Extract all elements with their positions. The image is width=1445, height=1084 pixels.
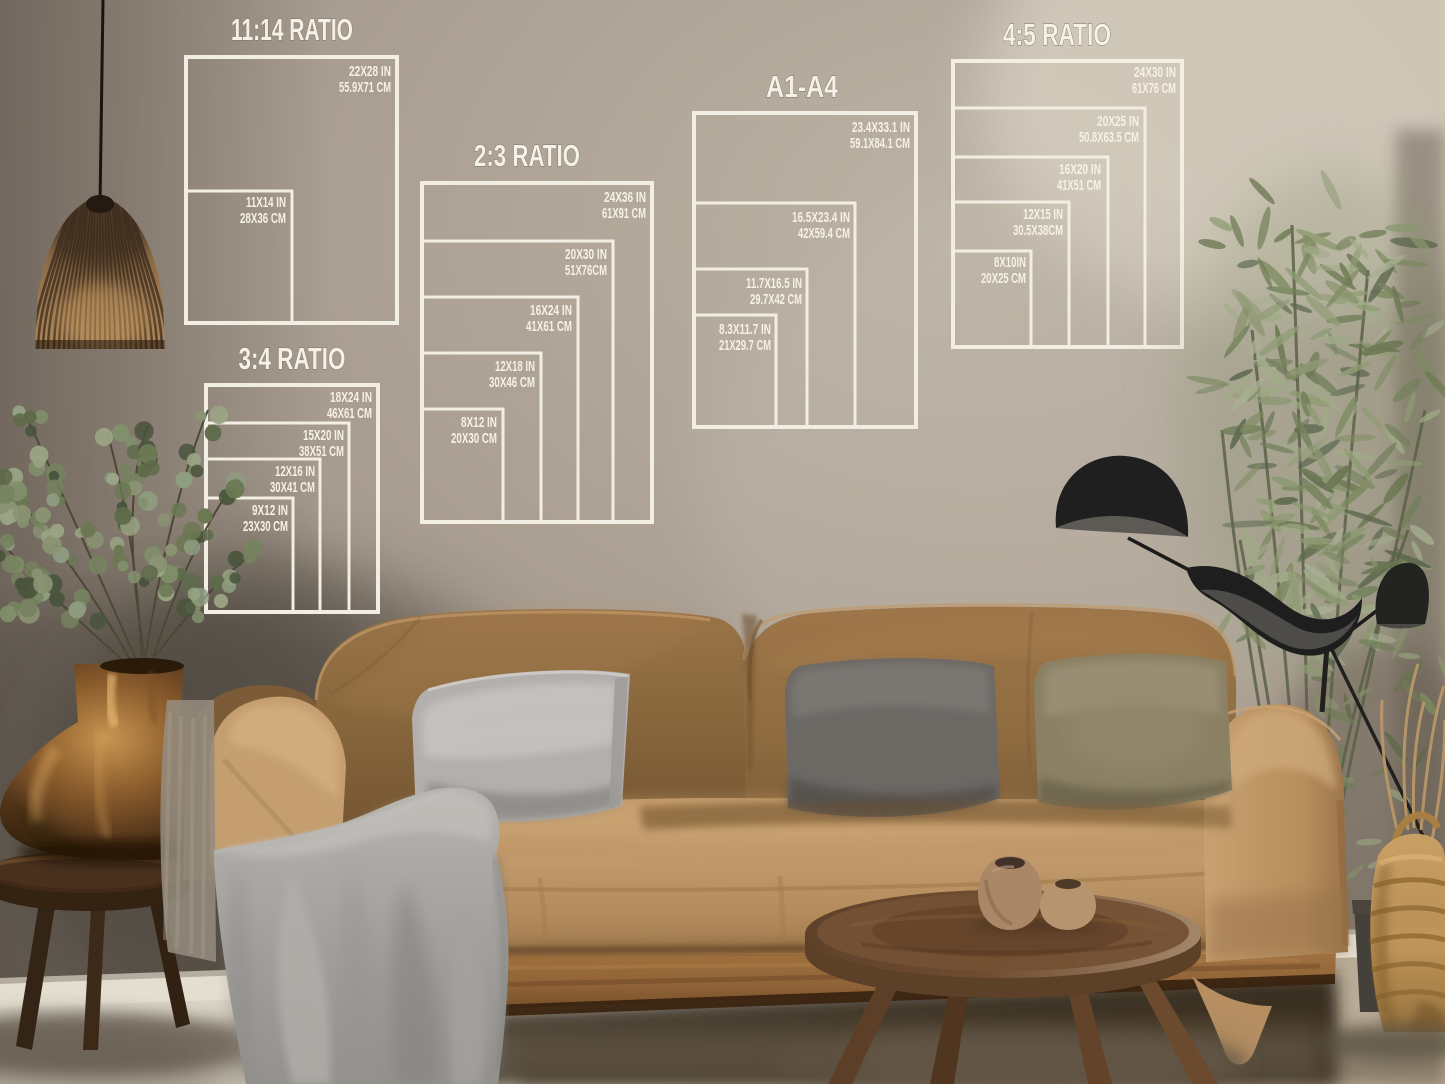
svg-text:8.3X11.7 IN: 8.3X11.7 IN [719,322,771,338]
svg-text:23X30 CM: 23X30 CM [243,519,288,535]
svg-text:2:3 RATIO: 2:3 RATIO [474,138,580,173]
svg-text:61X91 CM: 61X91 CM [602,206,646,222]
svg-text:11:14 RATIO: 11:14 RATIO [231,12,353,47]
svg-text:A1-A4: A1-A4 [766,69,839,104]
svg-text:55.9X71 CM: 55.9X71 CM [339,80,391,96]
svg-text:29.7X42 CM: 29.7X42 CM [750,292,802,308]
svg-text:4:5 RATIO: 4:5 RATIO [1003,17,1111,52]
svg-text:41X51 CM: 41X51 CM [1057,178,1101,194]
svg-text:20X30 CM: 20X30 CM [451,431,497,447]
svg-text:41X61 CM: 41X61 CM [526,319,572,335]
svg-text:16X20 IN: 16X20 IN [1059,162,1101,178]
svg-text:8X12 IN: 8X12 IN [461,415,497,431]
svg-text:42X59.4 CM: 42X59.4 CM [798,226,850,242]
svg-text:12X16 IN: 12X16 IN [275,464,315,480]
svg-text:59.1X84.1 CM: 59.1X84.1 CM [850,136,910,152]
svg-text:20X25 CM: 20X25 CM [981,271,1026,287]
svg-text:46X61 CM: 46X61 CM [327,406,372,422]
svg-text:3:4 RATIO: 3:4 RATIO [239,341,346,376]
svg-text:30.5X38CM: 30.5X38CM [1013,223,1063,239]
svg-text:28X36 CM: 28X36 CM [240,211,286,227]
svg-text:9X12 IN: 9X12 IN [252,503,288,519]
svg-text:61X76 CM: 61X76 CM [1132,81,1176,97]
svg-text:16X24 IN: 16X24 IN [530,303,572,319]
svg-text:50.8X63.5 CM: 50.8X63.5 CM [1079,130,1139,146]
svg-text:12X18 IN: 12X18 IN [495,359,535,375]
svg-text:20X30 IN: 20X30 IN [565,247,607,263]
svg-text:24X30 IN: 24X30 IN [1134,65,1176,81]
svg-text:51X76CM: 51X76CM [565,263,607,279]
svg-text:24X36 IN: 24X36 IN [604,190,646,206]
svg-text:30X41 CM: 30X41 CM [270,480,315,496]
svg-text:21X29.7 CM: 21X29.7 CM [719,338,771,354]
svg-text:11.7X16.5 IN: 11.7X16.5 IN [746,276,802,292]
svg-text:38X51 CM: 38X51 CM [299,444,344,460]
svg-text:30X46 CM: 30X46 CM [489,375,535,391]
svg-text:16.5X23.4 IN: 16.5X23.4 IN [792,210,850,226]
svg-text:8X10IN: 8X10IN [994,255,1026,271]
svg-text:22X28 IN: 22X28 IN [349,64,391,80]
svg-text:11X14 IN: 11X14 IN [246,195,286,211]
svg-text:23.4X33.1 IN: 23.4X33.1 IN [852,120,910,136]
svg-text:18X24 IN: 18X24 IN [330,390,372,406]
svg-text:15X20 IN: 15X20 IN [303,428,344,444]
svg-text:20X25 IN: 20X25 IN [1097,114,1139,130]
svg-text:12X15 IN: 12X15 IN [1023,207,1063,223]
